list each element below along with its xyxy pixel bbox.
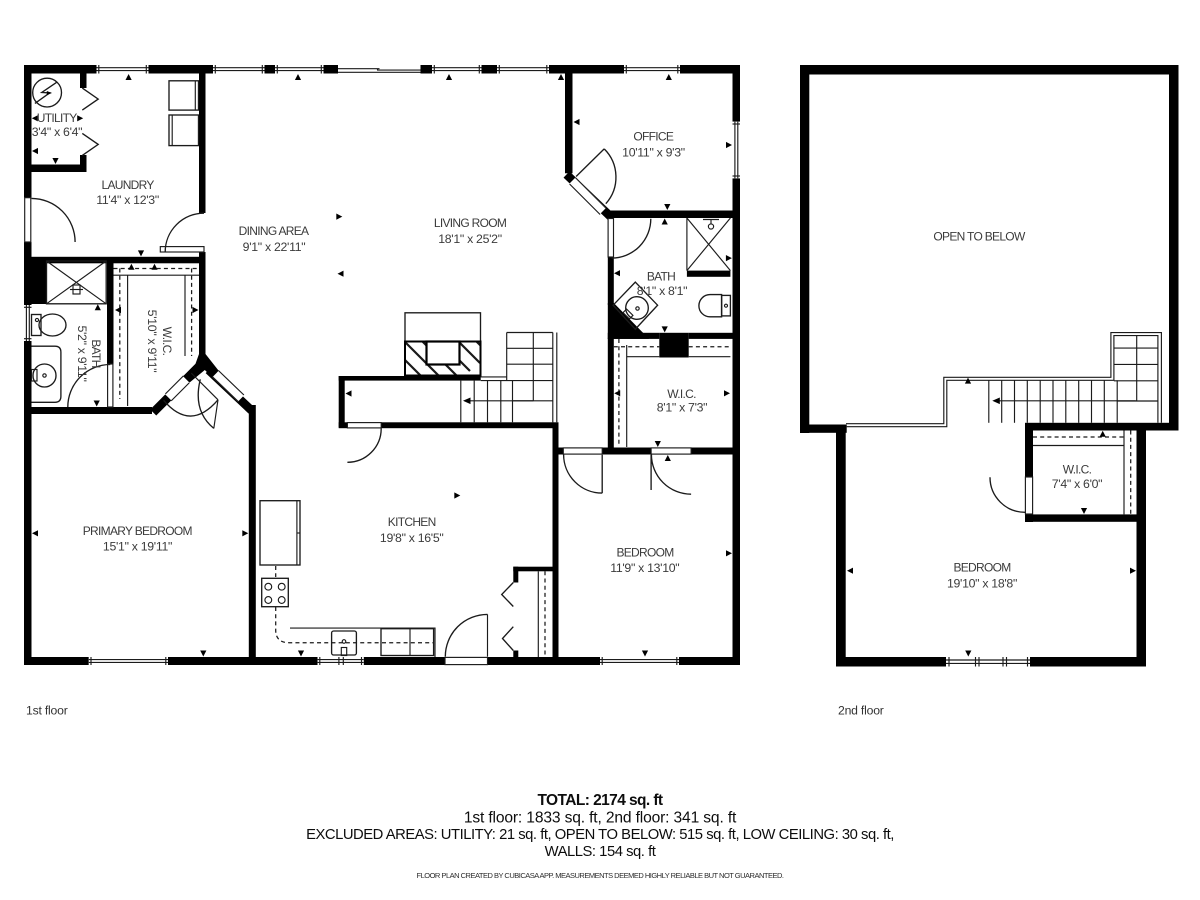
- svg-text:2nd floor: 2nd floor: [838, 704, 884, 718]
- svg-text:5'10" x 9'11": 5'10" x 9'11": [145, 310, 159, 373]
- svg-text:UTILITY: UTILITY: [37, 111, 77, 125]
- svg-text:EXCLUDED AREAS: UTILITY: 21 sq: EXCLUDED AREAS: UTILITY: 21 sq. ft, OPEN…: [306, 827, 894, 843]
- svg-text:TOTAL: 2174 sq. ft: TOTAL: 2174 sq. ft: [537, 792, 662, 809]
- svg-text:W.I.C.: W.I.C.: [667, 387, 696, 401]
- svg-text:19'10" x 18'8": 19'10" x 18'8": [947, 577, 1017, 591]
- svg-text:11'4" x 12'3": 11'4" x 12'3": [96, 193, 159, 207]
- svg-text:BEDROOM: BEDROOM: [616, 545, 674, 559]
- svg-text:1st floor: 1833 sq. ft, 2nd fl: 1st floor: 1833 sq. ft, 2nd floor: 341 s…: [464, 810, 737, 827]
- svg-text:W.I.C.: W.I.C.: [1063, 462, 1092, 476]
- svg-text:9'1" x 22'11": 9'1" x 22'11": [243, 240, 306, 254]
- svg-text:8'1" x 7'3": 8'1" x 7'3": [657, 401, 707, 415]
- svg-text:FLOOR PLAN CREATED BY CUBICASA: FLOOR PLAN CREATED BY CUBICASA APP. MEAS…: [417, 871, 784, 880]
- svg-text:8'1" x 8'1": 8'1" x 8'1": [637, 284, 687, 298]
- svg-text:18'1" x 25'2": 18'1" x 25'2": [438, 232, 502, 246]
- svg-text:OPEN TO BELOW: OPEN TO BELOW: [933, 229, 1026, 243]
- svg-text:LIVING ROOM: LIVING ROOM: [434, 216, 507, 230]
- svg-text:DINING AREA: DINING AREA: [239, 224, 309, 238]
- svg-text:BATH: BATH: [647, 270, 675, 284]
- svg-text:KITCHEN: KITCHEN: [388, 515, 436, 529]
- svg-text:PRIMARY BEDROOM: PRIMARY BEDROOM: [83, 524, 193, 538]
- svg-text:3'4" x 6'4": 3'4" x 6'4": [32, 125, 82, 139]
- svg-text:OFFICE: OFFICE: [633, 130, 673, 144]
- svg-text:WALLS: 154 sq. ft: WALLS: 154 sq. ft: [545, 844, 656, 860]
- svg-text:19'8" x 16'5": 19'8" x 16'5": [380, 531, 444, 545]
- svg-text:BEDROOM: BEDROOM: [953, 561, 1011, 575]
- svg-text:1st floor: 1st floor: [26, 704, 68, 718]
- svg-text:10'11" x 9'3": 10'11" x 9'3": [622, 145, 685, 159]
- svg-text:LAUNDRY: LAUNDRY: [101, 178, 154, 192]
- svg-text:5'2" x 9'11": 5'2" x 9'11": [75, 325, 89, 381]
- svg-text:7'4" x 6'0": 7'4" x 6'0": [1052, 477, 1102, 491]
- svg-text:11'9" x 13'10": 11'9" x 13'10": [610, 561, 679, 575]
- svg-text:BATH: BATH: [89, 339, 103, 367]
- svg-text:15'1" x 19'11": 15'1" x 19'11": [103, 539, 172, 553]
- svg-text:W.I.C.: W.I.C.: [160, 327, 174, 356]
